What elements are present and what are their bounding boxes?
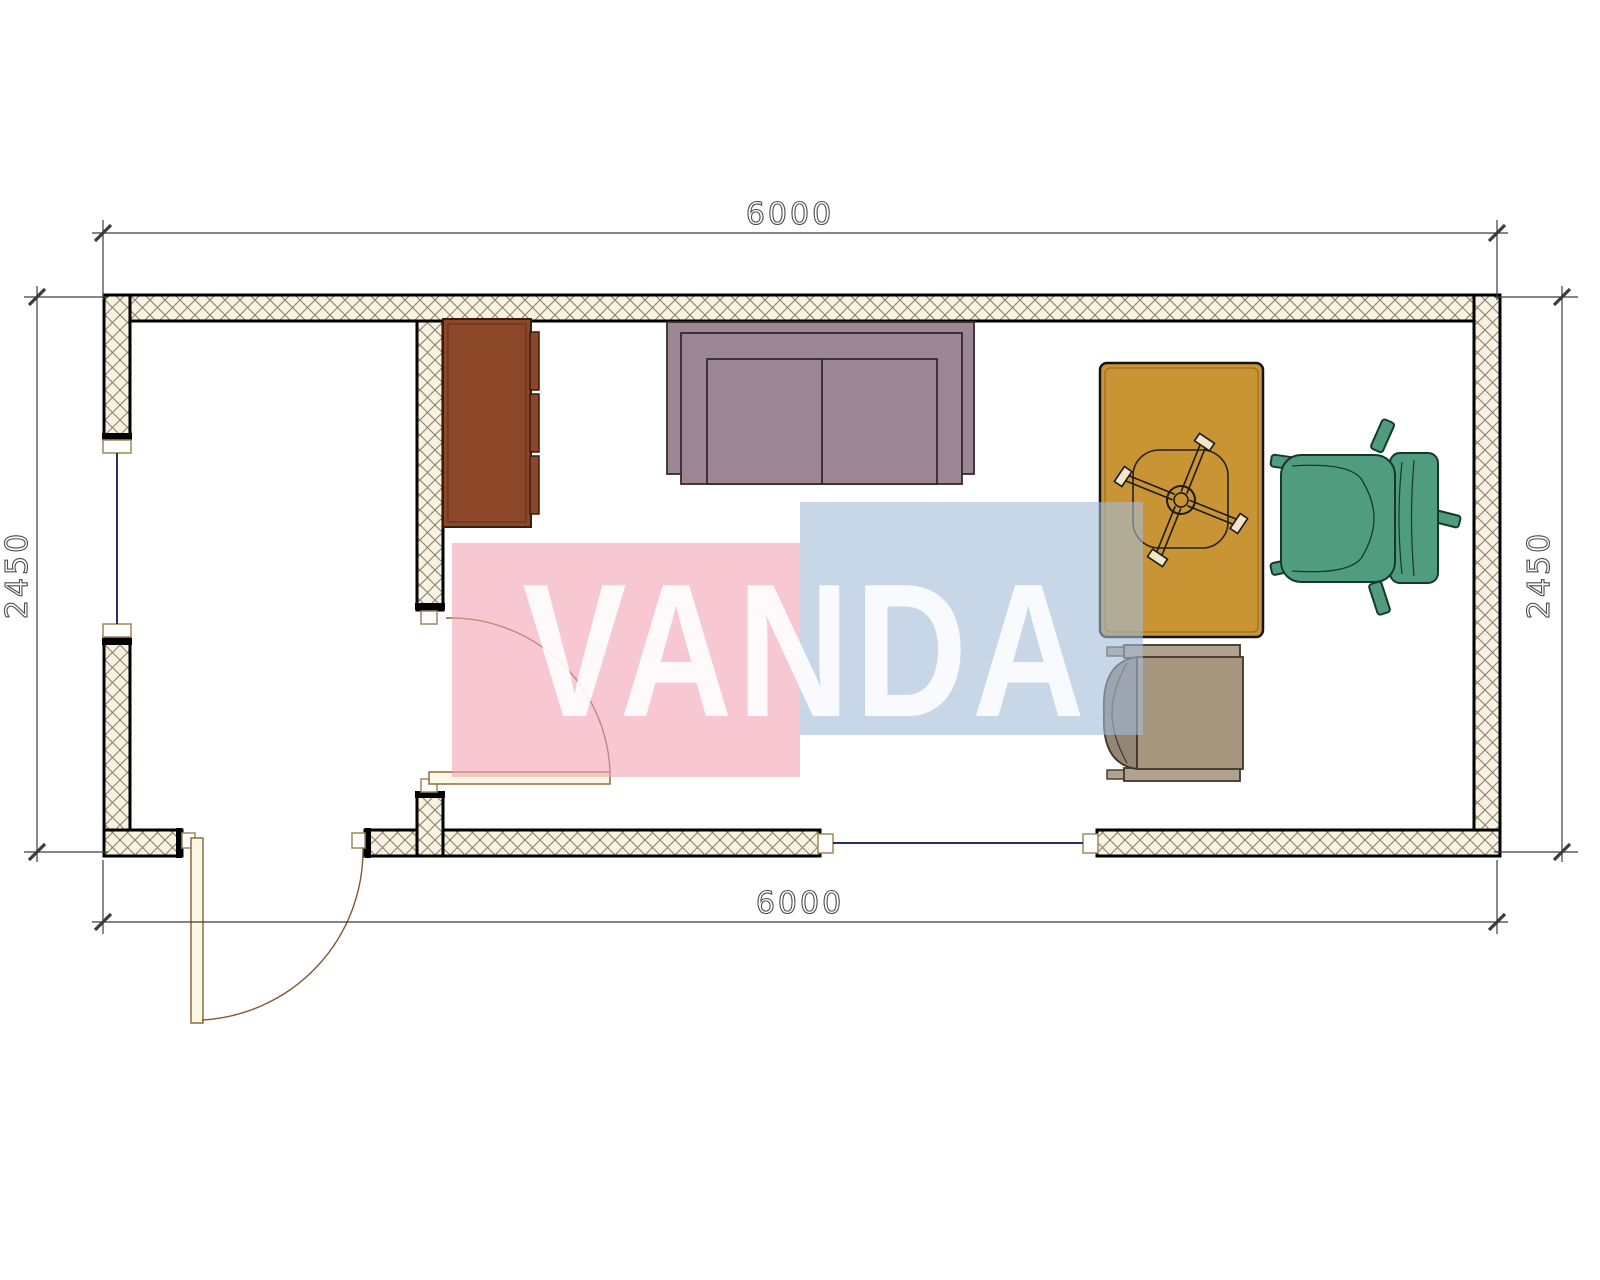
- exterior-door-swing-arc: [202, 848, 363, 1020]
- right-wall: [1474, 295, 1500, 856]
- desk-chair-seat: [1137, 657, 1243, 769]
- wall-end-caps: [102, 433, 445, 858]
- dimension-label-bottom: 6000: [756, 886, 844, 921]
- watermark-pink-rect: [452, 543, 800, 777]
- dimension-label-right: 2450: [1522, 531, 1557, 619]
- floor-plan-canvas: 6000 6000 2450 2450 VANDA: [0, 0, 1600, 1280]
- bottom-window: [818, 834, 1098, 853]
- top-wall: [104, 295, 1500, 321]
- bottom-wall-right: [1097, 830, 1500, 856]
- office-chair-backrest: [1390, 453, 1438, 583]
- cabinet: [443, 319, 539, 527]
- bottom-wall-left: [104, 830, 182, 856]
- dimension-label-top: 6000: [746, 197, 834, 232]
- bottom-wall-stub: [417, 793, 443, 856]
- watermark-blue-rect: [800, 502, 1143, 735]
- desk-chair-armrest-bottom: [1124, 768, 1240, 781]
- office-chair-seat: [1281, 455, 1395, 582]
- interior-partition-wall: [417, 321, 443, 610]
- left-wall-upper: [104, 295, 130, 440]
- dimension-label-left: 2450: [0, 531, 35, 619]
- left-window: [103, 440, 131, 637]
- office-chair: [1270, 419, 1461, 616]
- exterior-door: [182, 833, 365, 1023]
- exterior-door-leaf: [191, 838, 203, 1023]
- left-wall-lower: [104, 638, 130, 856]
- sofa: [667, 322, 974, 484]
